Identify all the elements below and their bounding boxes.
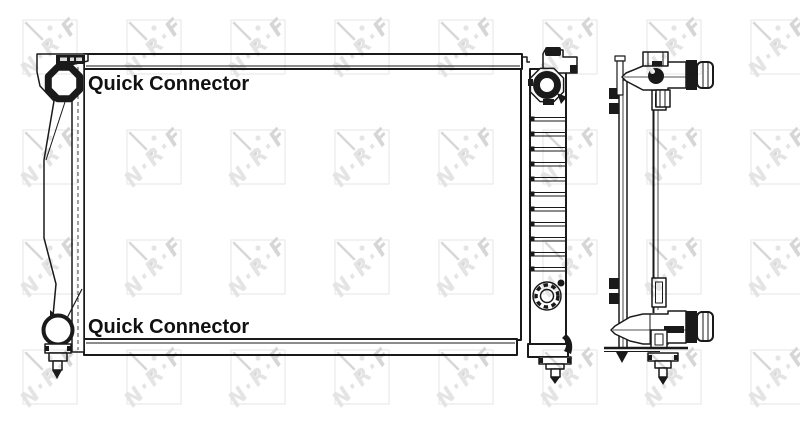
radiator-technical-drawing: N·R·F <box>0 0 800 429</box>
nrf-watermark-layer <box>0 0 800 429</box>
